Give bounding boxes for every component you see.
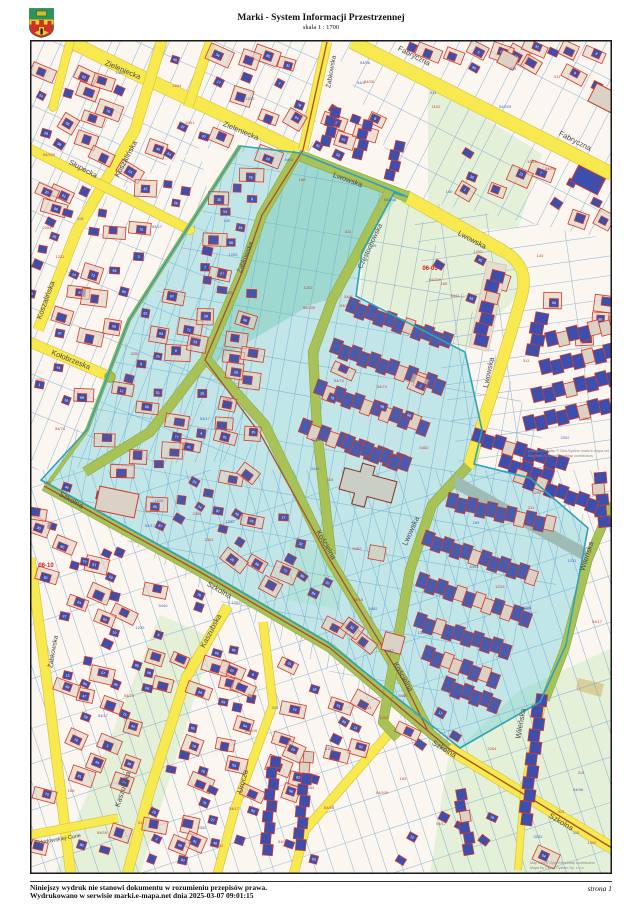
svg-text:1202: 1202 [232,600,242,605]
svg-text:1202: 1202 [304,285,314,290]
svg-text:90: 90 [552,301,556,305]
svg-text:5441: 5441 [186,120,196,125]
svg-text:311: 311 [365,705,372,710]
svg-text:1102: 1102 [215,843,224,848]
svg-text:54/17: 54/17 [152,224,163,229]
svg-text:6: 6 [175,349,177,353]
svg-text:311: 311 [430,90,437,95]
svg-text:54/55: 54/55 [545,166,556,171]
svg-text:Map data © OpenStreetMap contr: Map data © OpenStreetMap contributors [528,454,593,458]
svg-text:315: 315 [510,66,517,71]
svg-text:2264: 2264 [223,397,233,402]
svg-text:54/4: 54/4 [344,294,353,299]
svg-text:5482: 5482 [420,445,430,450]
svg-text:54/209: 54/209 [303,305,316,310]
svg-text:23: 23 [193,340,198,345]
svg-text:54/17: 54/17 [592,619,603,624]
svg-text:1225: 1225 [136,625,146,630]
svg-text:140: 140 [537,253,544,258]
svg-text:1202: 1202 [588,840,598,845]
svg-text:1231: 1231 [326,746,336,751]
svg-text:74: 74 [292,707,297,712]
svg-text:55: 55 [174,201,179,206]
svg-text:5441: 5441 [285,157,295,162]
svg-text:9: 9 [251,197,253,201]
svg-text:2264: 2264 [173,83,183,88]
svg-text:54/4: 54/4 [311,466,320,471]
svg-text:2302: 2302 [198,825,208,830]
svg-text:5440: 5440 [159,603,169,608]
svg-text:17: 17 [281,516,285,520]
svg-text:311: 311 [138,820,145,825]
svg-text:Map data © OpenStreetMap contr: Map data © OpenStreetMap contributors [530,861,595,865]
svg-text:wydruk z serwisu © Geo-System: wydruk z serwisu © Geo-System marki.e-ma… [528,449,609,453]
svg-text:315: 315 [327,477,334,482]
svg-text:1303: 1303 [418,630,428,635]
svg-text:Mapa tla © Geo-System Sp. z o.: Mapa tla © Geo-System Sp. z o.o. [530,866,585,870]
svg-text:1225: 1225 [155,498,165,503]
svg-text:2264: 2264 [306,785,316,790]
svg-text:54/74: 54/74 [55,426,66,431]
svg-text:34: 34 [238,226,243,231]
svg-text:54/17: 54/17 [229,806,240,811]
svg-text:96: 96 [231,648,236,653]
svg-text:84: 84 [159,331,164,336]
svg-text:311: 311 [345,229,352,234]
svg-text:123/1: 123/1 [527,159,538,164]
svg-text:1231: 1231 [568,558,578,563]
svg-text:54/4: 54/4 [357,80,366,85]
svg-text:98: 98 [147,671,152,676]
svg-text:35: 35 [251,430,255,434]
svg-text:5440: 5440 [455,693,465,698]
svg-text:54/4: 54/4 [219,271,228,276]
svg-text:311: 311 [523,358,530,363]
svg-text:1202: 1202 [226,519,236,524]
svg-text:06-10: 06-10 [38,563,54,569]
svg-text:47: 47 [82,694,87,699]
svg-text:54/17: 54/17 [98,713,109,718]
svg-text:5441: 5441 [470,564,480,569]
svg-text:169: 169 [473,520,480,525]
svg-text:1231: 1231 [56,254,66,259]
svg-text:1202: 1202 [246,96,256,101]
svg-text:98: 98 [229,241,233,245]
svg-text:6: 6 [140,362,142,366]
svg-text:140: 140 [446,189,453,194]
svg-text:32: 32 [298,542,303,547]
svg-text:1225: 1225 [387,453,397,458]
svg-text:45: 45 [143,187,147,191]
svg-text:54/17: 54/17 [436,821,447,826]
svg-text:315: 315 [77,216,84,221]
svg-text:169: 169 [400,776,407,781]
svg-text:97: 97 [216,509,221,514]
svg-text:5441: 5441 [451,293,461,298]
svg-text:5482: 5482 [385,648,395,653]
svg-text:54/209: 54/209 [43,152,56,157]
svg-text:54/96: 54/96 [573,787,584,792]
svg-text:169: 169 [44,480,51,485]
svg-text:1102: 1102 [432,104,441,109]
svg-text:1202: 1202 [178,655,188,660]
svg-text:54/55: 54/55 [97,830,108,835]
svg-text:76: 76 [249,176,253,180]
svg-text:1303: 1303 [224,290,234,295]
svg-text:77: 77 [174,435,179,440]
svg-text:169: 169 [68,788,75,793]
svg-text:2302: 2302 [205,537,215,542]
svg-text:2302: 2302 [561,435,571,440]
svg-text:54: 54 [232,763,237,768]
svg-text:69: 69 [145,405,149,409]
svg-text:5440: 5440 [521,606,531,611]
svg-text:99: 99 [80,396,84,400]
svg-text:315: 315 [558,809,565,814]
svg-text:54: 54 [223,210,227,214]
svg-text:82: 82 [143,311,148,316]
svg-text:06-05: 06-05 [422,266,438,272]
svg-text:54/55: 54/55 [324,805,335,810]
svg-text:123/1: 123/1 [267,804,278,809]
svg-text:5482: 5482 [353,546,363,551]
svg-text:169: 169 [370,243,377,248]
svg-text:54/4: 54/4 [278,839,287,844]
svg-text:315: 315 [573,830,580,835]
svg-text:2264: 2264 [488,746,498,751]
svg-text:1202: 1202 [474,249,484,254]
svg-text:35: 35 [217,198,221,202]
svg-text:1202: 1202 [380,715,390,720]
svg-text:54/209: 54/209 [376,790,389,795]
svg-text:2264: 2264 [312,437,322,442]
svg-text:69: 69 [221,700,226,705]
svg-text:5482: 5482 [369,606,379,611]
svg-text:5482: 5482 [399,693,409,698]
svg-text:64: 64 [112,269,116,273]
svg-text:311: 311 [528,505,535,510]
svg-text:54/209: 54/209 [245,728,258,733]
svg-text:123/1: 123/1 [495,584,506,589]
svg-text:3252: 3252 [533,490,543,495]
svg-text:123/1: 123/1 [582,416,593,421]
svg-text:25: 25 [200,392,204,396]
svg-text:2264: 2264 [43,225,53,230]
svg-text:54/209: 54/209 [499,104,512,109]
svg-text:59: 59 [112,324,117,329]
svg-text:65: 65 [153,505,157,509]
svg-text:54/74: 54/74 [124,693,135,698]
svg-text:7: 7 [204,266,206,270]
svg-text:54/96: 54/96 [360,60,371,65]
svg-text:54/108: 54/108 [384,197,397,202]
svg-text:44: 44 [56,366,61,371]
svg-text:3252: 3252 [36,377,46,382]
svg-text:54/55: 54/55 [364,79,375,84]
svg-text:26: 26 [155,354,160,359]
svg-text:65: 65 [190,726,195,731]
svg-text:39: 39 [204,314,208,318]
svg-text:311: 311 [554,74,561,79]
svg-text:54/17: 54/17 [200,416,211,421]
svg-text:54/74: 54/74 [593,181,604,186]
svg-text:51: 51 [156,391,160,395]
svg-text:169: 169 [441,281,448,286]
svg-text:85: 85 [598,318,602,322]
svg-text:70: 70 [139,228,143,232]
svg-text:315: 315 [578,770,585,775]
svg-text:169: 169 [299,177,306,182]
svg-text:2264: 2264 [193,511,203,516]
svg-text:97: 97 [57,331,62,336]
svg-text:1102: 1102 [483,556,492,561]
svg-text:72: 72 [186,328,191,333]
svg-text:1303: 1303 [116,70,126,75]
svg-text:3252: 3252 [534,834,544,839]
svg-text:12: 12 [119,389,124,394]
svg-text:97: 97 [170,294,175,299]
svg-text:41: 41 [187,445,192,450]
svg-text:54/74: 54/74 [377,384,388,389]
svg-text:54/209: 54/209 [236,684,249,689]
svg-text:54/55: 54/55 [353,597,364,602]
svg-text:77: 77 [82,560,87,565]
svg-text:54/17: 54/17 [340,303,351,308]
svg-text:1202: 1202 [229,252,239,257]
svg-text:54/74: 54/74 [334,378,345,383]
svg-text:54/17: 54/17 [145,523,156,528]
svg-text:140: 140 [224,218,231,223]
svg-text:65: 65 [249,519,254,524]
svg-text:315: 315 [272,705,279,710]
svg-text:315: 315 [136,257,143,262]
svg-text:28: 28 [234,370,239,375]
svg-text:3252: 3252 [131,351,141,356]
